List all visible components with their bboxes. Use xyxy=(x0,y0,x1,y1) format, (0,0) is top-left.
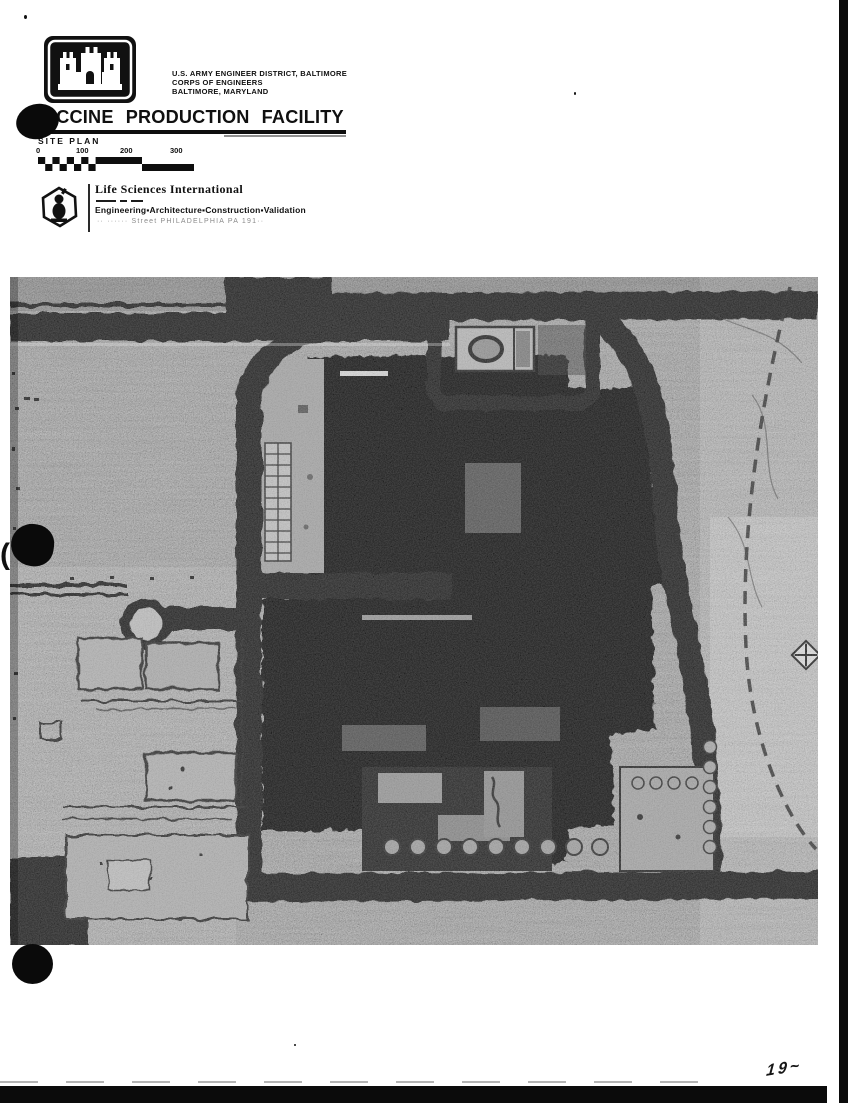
agency-line3: BALTIMORE, MARYLAND xyxy=(172,87,347,96)
agency-address: U.S. ARMY ENGINEER DISTRICT, BALTIMORE C… xyxy=(172,69,347,96)
left-margin-mark: ( xyxy=(0,538,10,572)
army-corps-castle-icon xyxy=(44,36,136,103)
scale-label-200: 200 xyxy=(120,146,133,155)
scale-label-0: 0 xyxy=(36,146,40,155)
sheet-title: VACCINE PRODUCTION FACILITY xyxy=(32,106,344,128)
hexagon-emblem-icon xyxy=(38,185,80,229)
firm-subline-marks xyxy=(96,200,116,202)
agency-line2: CORPS OF ENGINEERS xyxy=(172,78,347,87)
firm-tagline: Engineering▪Architecture▪Construction▪Va… xyxy=(95,205,306,215)
graphic-scale-bar xyxy=(38,157,198,171)
title-underline-fragment xyxy=(224,135,346,137)
firm-subline-marks xyxy=(120,200,127,202)
firm-divider-rule xyxy=(88,184,90,232)
scan-edge-dashes xyxy=(0,1081,705,1083)
scan-speck xyxy=(294,1044,296,1046)
scale-label-300: 300 xyxy=(170,146,183,155)
scan-right-edge xyxy=(839,0,848,1103)
site-plan-image xyxy=(10,277,818,945)
handwritten-page-mark: 19~ xyxy=(765,1057,802,1081)
firm-subline-marks xyxy=(131,200,143,202)
title-underline xyxy=(30,130,346,134)
scale-label-100: 100 xyxy=(76,146,89,155)
scan-speck xyxy=(574,92,576,95)
scan-speck xyxy=(24,15,27,19)
scanned-sheet: U.S. ARMY ENGINEER DISTRICT, BALTIMORE C… xyxy=(0,0,850,1103)
sheet-subtitle: SITE PLAN xyxy=(38,136,100,146)
firm-name: Life Sciences International xyxy=(95,182,243,197)
scan-bottom-edge xyxy=(0,1086,827,1103)
hole-punch-mark xyxy=(12,944,53,984)
agency-line1: U.S. ARMY ENGINEER DISTRICT, BALTIMORE xyxy=(172,69,347,78)
firm-address-faint: ·· ······ Street PHILADELPHIA PA 191·· xyxy=(97,218,264,225)
